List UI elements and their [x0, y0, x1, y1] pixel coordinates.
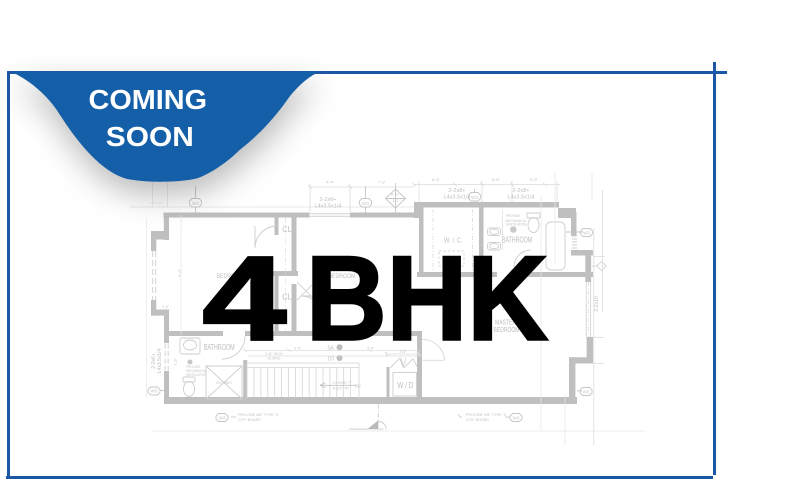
svg-text:COMING: COMING: [89, 84, 208, 115]
svg-text:SOON: SOON: [106, 121, 194, 152]
